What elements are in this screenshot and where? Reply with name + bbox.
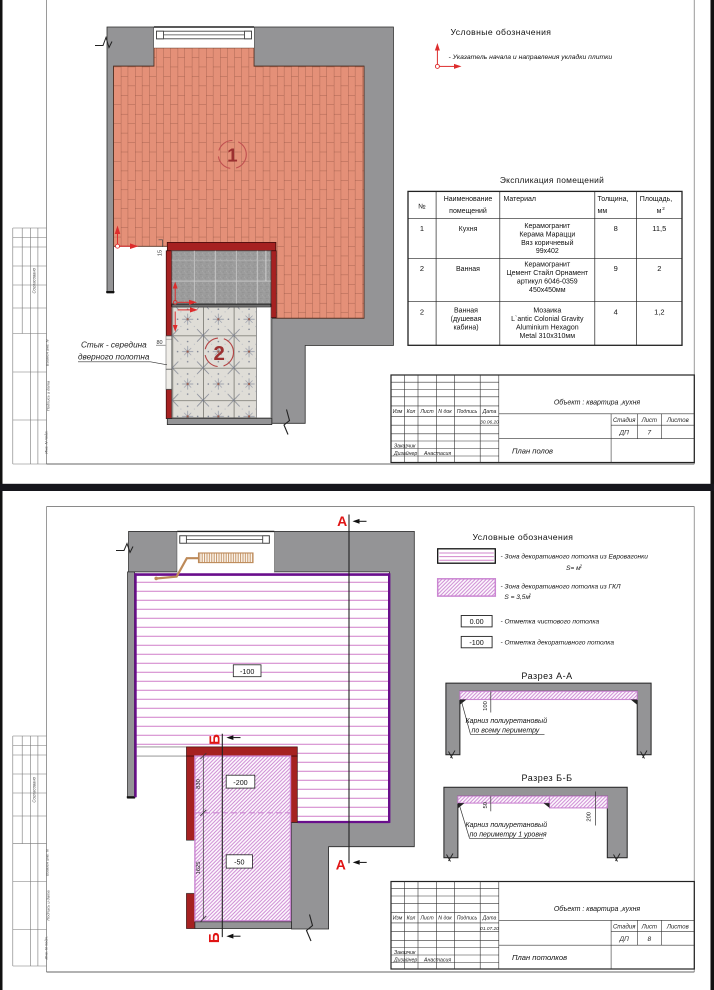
- svg-text:(душевая: (душевая: [451, 316, 482, 323]
- svg-text:99х402: 99х402: [536, 248, 559, 255]
- svg-text:Карниз полиуретановый: Карниз полиуретановый: [466, 821, 548, 829]
- svg-text:Инв. N подл.: Инв. N подл.: [44, 936, 49, 959]
- svg-text:Подпись и дата: Подпись и дата: [46, 890, 51, 921]
- svg-text:Анастасия: Анастасия: [423, 957, 451, 963]
- svg-text:Объект : квартира ,кухня: Объект : квартира ,кухня: [554, 905, 641, 913]
- svg-text:Подпись: Подпись: [457, 409, 478, 415]
- svg-text:200: 200: [586, 812, 592, 822]
- svg-text:Вяз коричневый: Вяз коричневый: [521, 239, 574, 247]
- svg-text:№: №: [418, 204, 426, 211]
- svg-text:S = 3,5м: S = 3,5м: [504, 594, 530, 601]
- svg-text:Aluminium Hexagon: Aluminium Hexagon: [516, 325, 579, 332]
- svg-text:Дизайнер: Дизайнер: [393, 450, 417, 457]
- svg-text:Изм: Изм: [393, 916, 403, 922]
- svg-text:Лист: Лист: [419, 916, 434, 922]
- svg-text:8: 8: [647, 936, 651, 943]
- svg-text:Условные обозначения: Условные обозначения: [451, 27, 552, 37]
- svg-text:Взамен инв. N: Взамен инв. N: [45, 849, 50, 876]
- svg-text:Подпись: Подпись: [457, 916, 478, 922]
- svg-text:Площадь,: Площадь,: [640, 196, 672, 203]
- svg-text:Листов: Листов: [666, 418, 689, 424]
- svg-text:- Отметка чистового потолка: - Отметка чистового потолка: [501, 619, 600, 626]
- svg-text:Подпись и дата: Подпись и дата: [46, 380, 51, 411]
- svg-text:- Отметка декоративного потолк: - Отметка декоративного потолка: [501, 639, 615, 647]
- svg-text:1,2: 1,2: [654, 308, 664, 317]
- svg-text:-50: -50: [234, 858, 244, 867]
- svg-text:830: 830: [196, 779, 202, 789]
- svg-text:Условные обозначения: Условные обозначения: [473, 532, 574, 542]
- svg-text:Лист: Лист: [641, 418, 657, 424]
- svg-text:Керамогранит: Керамогранит: [524, 223, 571, 230]
- svg-text:мм: мм: [598, 208, 608, 215]
- svg-text:кабина): кабина): [453, 324, 478, 332]
- svg-text:Кол: Кол: [407, 409, 416, 415]
- svg-text:Дата: Дата: [482, 409, 497, 415]
- svg-text:15: 15: [158, 250, 164, 256]
- svg-text:- Зона декоративного потолка и: - Зона декоративного потолка из ГКЛ: [501, 583, 621, 591]
- svg-text:Керамогранит: Керамогранит: [524, 262, 571, 269]
- svg-text:Наименование: Наименование: [444, 196, 493, 203]
- svg-text:Кол: Кол: [407, 916, 416, 922]
- svg-text:ДП: ДП: [619, 430, 630, 437]
- svg-text:11,5: 11,5: [652, 224, 666, 233]
- svg-text:Б: Б: [206, 734, 223, 745]
- svg-text:Карниз полиуретановый: Карниз полиуретановый: [466, 717, 548, 725]
- svg-text:Стадия: Стадия: [613, 418, 636, 424]
- svg-text:2: 2: [657, 264, 661, 273]
- svg-text:Цемент Стайл Орнамент: Цемент Стайл Орнамент: [506, 269, 588, 277]
- svg-text:4: 4: [614, 308, 618, 317]
- svg-text:Листов: Листов: [666, 925, 689, 931]
- svg-text:Ванная: Ванная: [454, 308, 478, 315]
- svg-text:План потолков: План потолков: [512, 953, 567, 962]
- svg-text:Дата: Дата: [482, 916, 497, 922]
- svg-text:0.00: 0.00: [470, 617, 484, 626]
- svg-text:дверного полотна: дверного полотна: [78, 353, 150, 362]
- svg-text:Керама Марацци: Керама Марацци: [519, 231, 575, 238]
- svg-text:ДП: ДП: [619, 936, 630, 943]
- svg-text:Ванная: Ванная: [456, 266, 480, 273]
- svg-text:50: 50: [483, 802, 489, 808]
- svg-text:Экспликация помещений: Экспликация помещений: [500, 175, 604, 185]
- svg-text:Заказчик: Заказчик: [394, 443, 416, 449]
- svg-text:Согласовано: Согласовано: [32, 267, 37, 293]
- svg-text:Заказчик: Заказчик: [394, 950, 416, 956]
- svg-text:1625: 1625: [196, 862, 202, 875]
- svg-text:01.07.20: 01.07.20: [480, 926, 499, 932]
- svg-text:7: 7: [647, 430, 651, 437]
- svg-text:А: А: [336, 857, 346, 873]
- svg-text:Материал: Материал: [504, 196, 536, 203]
- svg-text:100: 100: [483, 701, 489, 711]
- svg-text:Инв. N подл.: Инв. N подл.: [44, 430, 49, 453]
- svg-text:Лист: Лист: [641, 925, 657, 931]
- svg-text:1: 1: [227, 144, 237, 165]
- svg-text:2: 2: [420, 264, 424, 273]
- svg-text:Объект : квартира ,кухня: Объект : квартира ,кухня: [554, 399, 641, 407]
- svg-text:Metal 310х310мм: Metal 310х310мм: [520, 333, 576, 340]
- svg-text:1: 1: [420, 224, 424, 233]
- svg-text:450х450мм: 450х450мм: [529, 287, 566, 294]
- svg-text:Взамен инв. N: Взамен инв. N: [45, 339, 50, 366]
- svg-text:Разрез А-А: Разрез А-А: [521, 671, 572, 681]
- svg-text:Лист: Лист: [419, 409, 434, 415]
- svg-text:Согласовано: Согласовано: [32, 776, 37, 802]
- svg-text:Мозаика: Мозаика: [533, 308, 561, 315]
- svg-text:артикул 6046-0359: артикул 6046-0359: [517, 278, 578, 285]
- svg-text:Дизайнер: Дизайнер: [393, 956, 417, 963]
- svg-text:N док: N док: [438, 916, 452, 922]
- svg-text:А: А: [337, 513, 347, 529]
- svg-text:по периметру 1 уровня: по периметру 1 уровня: [470, 831, 547, 838]
- svg-text:-100: -100: [240, 667, 254, 676]
- svg-text:Толщина,: Толщина,: [598, 196, 629, 203]
- svg-text:Разрез Б-Б: Разрез Б-Б: [522, 773, 573, 783]
- svg-text:помещений: помещений: [449, 207, 487, 215]
- svg-text:Стадия: Стадия: [613, 925, 636, 931]
- svg-text:- Зона декоративного потолка и: - Зона декоративного потолка из Евроваго…: [501, 553, 649, 561]
- svg-text:Кухня: Кухня: [459, 226, 478, 233]
- svg-text:Стык - середина: Стык - середина: [81, 340, 147, 349]
- svg-text:9: 9: [614, 264, 618, 273]
- svg-text:м: м: [657, 208, 662, 215]
- svg-text:L`antic Colonial Gravity: L`antic Colonial Gravity: [511, 316, 584, 323]
- svg-text:2: 2: [214, 343, 225, 365]
- svg-text:по всему периметру: по всему периметру: [472, 728, 540, 735]
- svg-text:-100: -100: [469, 638, 483, 647]
- svg-text:- Указатель начала и направлен: - Указатель начала и направления укладки…: [449, 53, 613, 61]
- svg-text:План полов: План полов: [512, 446, 553, 455]
- svg-text:30.06.20: 30.06.20: [480, 420, 499, 426]
- svg-text:Изм: Изм: [393, 409, 403, 415]
- svg-text:8: 8: [614, 224, 618, 233]
- svg-text:-200: -200: [233, 778, 247, 787]
- svg-text:2: 2: [420, 308, 424, 317]
- svg-text:Б: Б: [206, 932, 223, 943]
- svg-text:N док: N док: [438, 409, 452, 415]
- svg-text:Анастасия: Анастасия: [423, 451, 451, 457]
